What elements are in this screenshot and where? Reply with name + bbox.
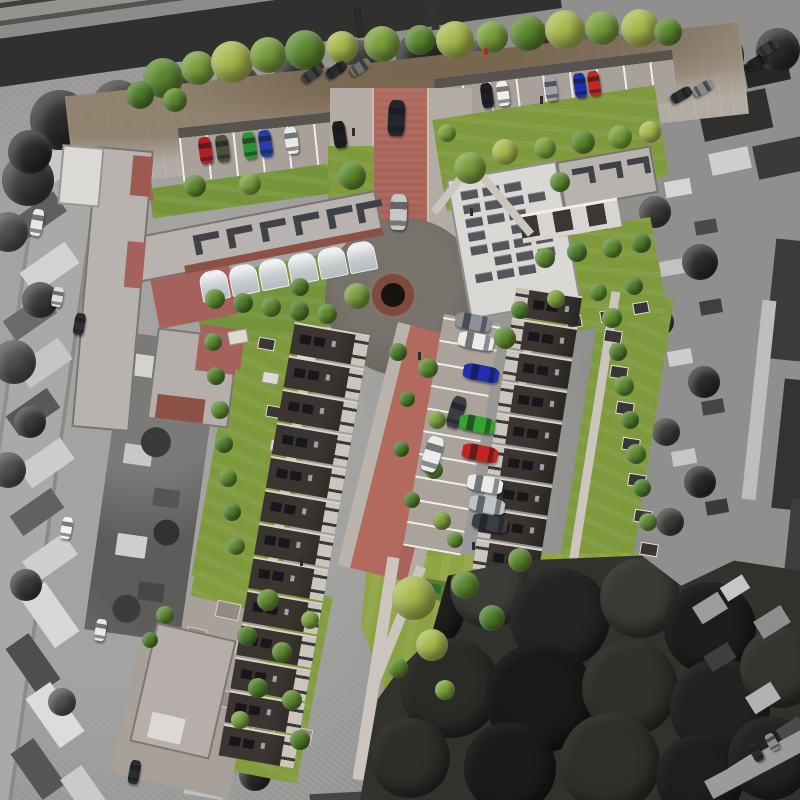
house-front xyxy=(497,383,514,413)
solar-panel xyxy=(494,254,512,266)
roof-vent xyxy=(226,224,253,236)
roof-vent-leg xyxy=(616,167,624,179)
solar-panel xyxy=(487,213,505,225)
rooflight xyxy=(314,441,319,448)
roof-vent-leg xyxy=(588,172,596,184)
lawn xyxy=(558,288,674,581)
footpath xyxy=(266,333,318,573)
garden-shed xyxy=(281,541,300,556)
solar-panel xyxy=(470,244,488,256)
parked-car-north_existing_street xyxy=(745,52,770,73)
roof-vent xyxy=(193,231,220,243)
northwest-white-block xyxy=(57,144,104,207)
gray-structure xyxy=(771,378,800,511)
glass-canopy xyxy=(257,257,290,292)
aerial-masterplan-render xyxy=(0,0,800,800)
backyard-structure xyxy=(137,581,165,602)
gray-structure xyxy=(659,258,685,277)
historic-kiln-feature xyxy=(372,274,414,316)
solar-panel xyxy=(264,535,276,546)
house-front xyxy=(345,368,364,400)
rooflight xyxy=(530,527,535,534)
roof-vent xyxy=(355,199,382,211)
rooflight xyxy=(565,306,570,313)
solar-panel xyxy=(504,181,522,193)
roof-vent-leg xyxy=(357,210,366,224)
roof-vent-leg xyxy=(194,241,203,255)
garden-shed xyxy=(603,329,623,345)
house-unit xyxy=(497,381,567,421)
tree xyxy=(621,411,639,429)
gray-structure xyxy=(705,498,729,516)
solar-panel xyxy=(506,195,524,207)
garden-shed xyxy=(251,722,276,742)
gray-structure xyxy=(26,682,85,748)
house-front xyxy=(327,469,346,501)
solar-panel xyxy=(523,363,535,374)
tree xyxy=(534,137,556,159)
gray-structure xyxy=(664,178,692,198)
garden-shed xyxy=(273,473,292,488)
backyard-structure xyxy=(152,487,180,508)
house-unit xyxy=(278,389,358,434)
tree xyxy=(257,589,279,611)
rooflight xyxy=(535,495,540,502)
gray-tree xyxy=(239,759,271,791)
house-unit xyxy=(266,456,346,501)
glass-canopy xyxy=(198,268,231,303)
gray-tree xyxy=(656,508,684,536)
roof-vent-leg xyxy=(294,222,303,236)
street-lamp xyxy=(300,558,303,566)
roof-vent-leg xyxy=(643,162,651,174)
tree xyxy=(602,238,622,258)
rooflight xyxy=(331,341,336,348)
tree xyxy=(589,283,607,301)
backyard-structure xyxy=(115,533,148,559)
parked-car-lower_road_bays xyxy=(471,512,509,535)
garden-shed xyxy=(599,309,617,324)
solar-panel xyxy=(475,271,493,283)
parked-car-north_existing_street xyxy=(756,38,781,59)
tree xyxy=(609,343,627,361)
glass-canopy xyxy=(286,251,319,286)
rooflight xyxy=(284,609,289,616)
rooflight xyxy=(290,575,295,582)
solar-panel xyxy=(537,246,555,258)
house-front xyxy=(477,509,494,539)
solar-panel xyxy=(513,426,525,437)
rooflight xyxy=(555,369,560,376)
house-unit xyxy=(482,476,552,516)
house-unit xyxy=(248,556,328,601)
main-building-south-annex xyxy=(147,327,240,428)
solar-panel xyxy=(484,199,502,211)
gray-structure xyxy=(764,238,800,361)
tree xyxy=(301,611,319,629)
glass-canopy xyxy=(227,262,260,297)
gray-tree xyxy=(646,308,674,336)
parked-car-lower_road_bays xyxy=(468,494,506,517)
house-front xyxy=(502,351,519,381)
rooflight xyxy=(560,337,565,344)
house-front xyxy=(297,636,316,668)
solar-panel xyxy=(503,489,515,500)
tree xyxy=(290,730,310,750)
house-front xyxy=(339,402,358,434)
footpath xyxy=(518,338,534,385)
rooflight xyxy=(278,642,283,649)
house-unit xyxy=(507,318,577,358)
gray-structure xyxy=(752,134,800,180)
tree xyxy=(239,173,261,195)
rooflight xyxy=(272,676,277,683)
garden-shed xyxy=(615,401,635,417)
solar-panel xyxy=(299,334,311,345)
rooflight xyxy=(308,475,313,482)
tree xyxy=(633,479,651,497)
garden-shed xyxy=(269,439,288,454)
solar-panel xyxy=(468,230,486,242)
solar-panel xyxy=(282,435,294,446)
garden-shed xyxy=(609,365,629,381)
tree xyxy=(219,469,237,487)
rooflight xyxy=(319,408,324,415)
solar-panel xyxy=(492,240,510,252)
solar-panel xyxy=(508,458,520,469)
house-unit xyxy=(487,444,557,484)
roof-vent xyxy=(293,211,320,223)
red-roof-patch xyxy=(155,394,206,424)
gray-structure xyxy=(667,348,693,367)
solar-panel xyxy=(270,502,282,513)
gray-tree xyxy=(0,212,28,252)
gray-tree xyxy=(684,466,716,498)
garden-shed xyxy=(633,509,653,525)
tree xyxy=(215,435,233,453)
gray-tree xyxy=(652,418,680,446)
roof-vent-leg xyxy=(227,235,236,249)
tree xyxy=(614,376,634,396)
tree xyxy=(405,25,435,55)
tree xyxy=(289,301,309,321)
gray-structure xyxy=(694,218,718,236)
footpath xyxy=(567,291,621,576)
rooflight xyxy=(260,743,265,750)
solar-panel xyxy=(288,401,300,412)
tree xyxy=(261,297,281,317)
gray-structure xyxy=(708,146,752,176)
rooflight xyxy=(266,709,271,716)
tree xyxy=(602,308,622,328)
gray-structure xyxy=(701,398,725,416)
rooflight xyxy=(296,542,301,549)
parked-car-left_street xyxy=(59,516,74,540)
tree xyxy=(223,503,241,521)
gray-structure xyxy=(742,300,777,500)
house-front xyxy=(333,435,352,467)
solar-panel xyxy=(518,264,536,276)
dark-tree-blob xyxy=(370,718,450,798)
house-unit xyxy=(260,489,340,534)
house-front xyxy=(487,446,504,476)
street-lamp xyxy=(472,542,475,550)
rooflight xyxy=(302,508,307,515)
roof-vent-leg xyxy=(261,228,270,242)
garden-shed xyxy=(627,473,647,489)
house-front xyxy=(286,703,305,735)
garden-shed xyxy=(255,676,278,695)
tree xyxy=(272,642,292,662)
house-unit xyxy=(254,523,334,568)
gray-tree xyxy=(639,196,671,228)
rooflight xyxy=(540,464,545,471)
solar-panel xyxy=(518,395,530,406)
roof-vent xyxy=(326,205,353,217)
gray-tree xyxy=(682,244,718,280)
gray-structure xyxy=(671,448,697,467)
house-unit xyxy=(502,349,572,389)
house-front xyxy=(482,478,499,508)
gray-tree xyxy=(756,28,800,72)
garden-shed xyxy=(565,315,583,330)
house-front xyxy=(280,737,299,769)
tree xyxy=(626,444,646,464)
rooflight xyxy=(545,432,550,439)
garden-shed xyxy=(257,337,276,352)
house-unit xyxy=(477,507,547,547)
gray-structure xyxy=(60,765,110,800)
red-roof-patch xyxy=(195,334,239,375)
rooflight xyxy=(550,401,555,408)
house-unit xyxy=(284,355,364,400)
house-unit xyxy=(272,422,352,467)
house-front xyxy=(315,536,334,568)
solar-panel xyxy=(482,185,500,197)
house-front xyxy=(291,670,310,702)
solar-panel xyxy=(276,468,288,479)
garden-shed xyxy=(639,542,659,558)
solar-panel xyxy=(516,250,534,262)
roof-vent-leg xyxy=(327,215,336,229)
tree xyxy=(492,139,518,165)
gray-structure xyxy=(699,298,723,316)
house-front xyxy=(321,502,340,534)
gray-structure xyxy=(743,56,791,89)
garden-shed xyxy=(632,301,650,316)
solar-panel xyxy=(528,331,540,342)
gray-tree xyxy=(48,688,76,716)
solar-panel xyxy=(463,203,481,215)
garden-shed xyxy=(621,437,641,453)
rooflight xyxy=(325,374,330,381)
tree xyxy=(639,513,657,531)
house-front xyxy=(303,603,322,635)
garden-shed xyxy=(295,346,317,363)
garden-shed xyxy=(265,405,284,420)
house-front xyxy=(492,414,509,444)
house-front xyxy=(309,569,328,601)
solar-panel xyxy=(258,569,270,580)
garden-shed xyxy=(261,371,280,386)
solar-panel xyxy=(294,368,306,379)
gray-tree xyxy=(688,366,720,398)
tree xyxy=(571,130,595,154)
solar-panel xyxy=(528,191,546,203)
red-roof-patch xyxy=(130,155,153,197)
solar-panel xyxy=(497,268,515,280)
tree xyxy=(227,537,245,555)
roof-vent xyxy=(259,218,286,230)
solar-panel xyxy=(465,216,483,228)
main-building-north-wing xyxy=(118,190,384,285)
solar-panel xyxy=(460,189,478,201)
solar-panel xyxy=(498,521,510,532)
backyard-structure xyxy=(152,518,181,547)
garden-shed xyxy=(291,726,314,745)
garden-shed xyxy=(277,507,296,522)
tree xyxy=(625,277,643,295)
tree xyxy=(282,690,302,710)
house-unit xyxy=(492,412,562,452)
rooftop-court xyxy=(147,712,186,745)
house-front xyxy=(507,320,524,350)
tree xyxy=(631,233,651,253)
